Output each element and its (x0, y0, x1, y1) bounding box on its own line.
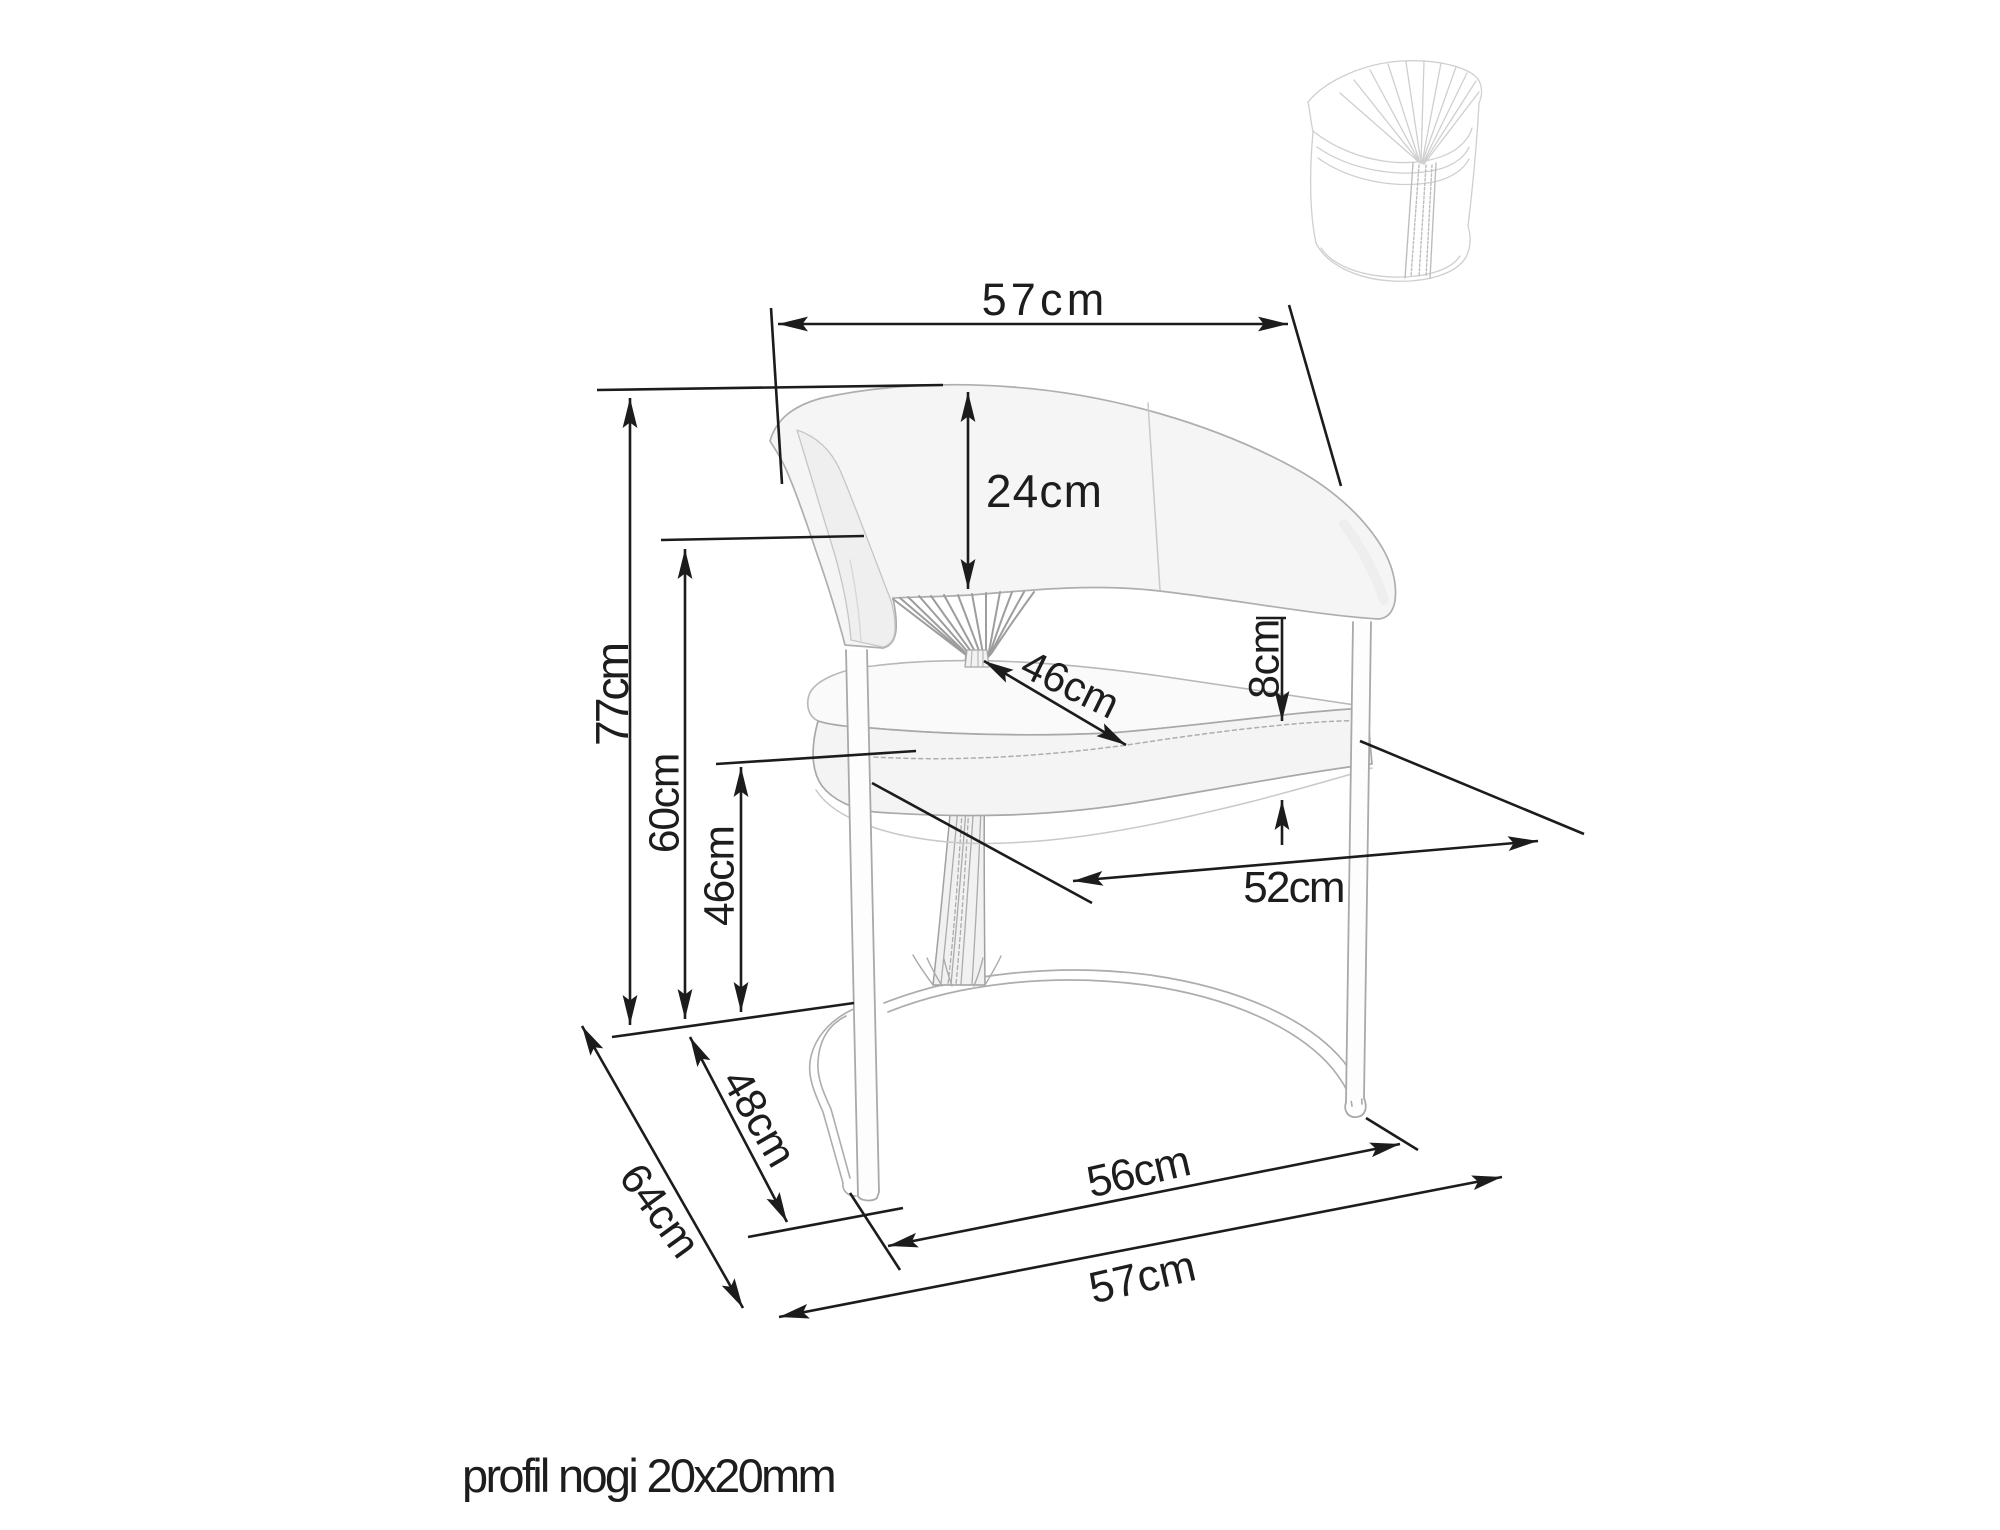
svg-text:64cm: 64cm (610, 1155, 709, 1267)
svg-text:52cm: 52cm (1243, 863, 1343, 912)
svg-text:60cm: 60cm (642, 754, 689, 853)
svg-text:57cm: 57cm (1084, 1241, 1200, 1313)
svg-text:57cm: 57cm (982, 274, 1109, 325)
svg-text:77cm: 77cm (586, 645, 638, 746)
svg-text:56cm: 56cm (1082, 1136, 1194, 1207)
svg-text:8cm: 8cm (1241, 619, 1289, 699)
svg-text:24cm: 24cm (986, 465, 1103, 517)
svg-text:48cm: 48cm (712, 1061, 805, 1174)
svg-text:46cm: 46cm (697, 826, 744, 926)
svg-text:profil nogi 20x20mm: profil nogi 20x20mm (462, 1449, 834, 1502)
